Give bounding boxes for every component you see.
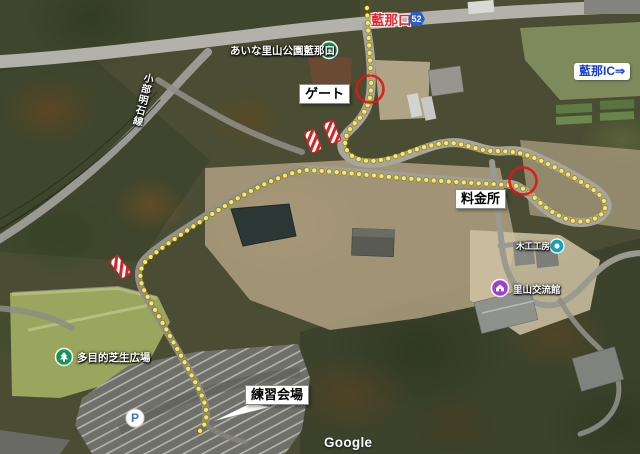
terrain-layer — [0, 0, 640, 454]
road-closed-barrier-icon — [323, 120, 341, 145]
map-graphics-layer: P — [0, 0, 640, 454]
wood-workshop-pin-icon[interactable] — [550, 239, 564, 253]
interchange-label: 藍那IC⇒ — [574, 63, 630, 80]
parking-letter: P — [131, 411, 139, 425]
lawn-plaza-label: 多目的芝生広場 — [77, 350, 151, 365]
lawn-plaza-pin-icon[interactable] — [56, 349, 73, 366]
gate-callout: ゲート — [299, 84, 350, 104]
road-closed-barrier-icon — [304, 129, 322, 154]
satoyama-hall-pin-icon[interactable] — [492, 280, 509, 297]
satoyama-hall-label: 里山交流館 — [513, 282, 561, 296]
google-watermark: Google — [324, 435, 372, 450]
parking-pin-icon[interactable]: P — [126, 409, 144, 427]
toll-booth-callout: 料金所 — [455, 189, 506, 209]
satellite-map-canvas[interactable]: P 藍那口 52 あいな里山公園藍那口 小部明石線 藍那IC⇒ ゲート 料金所 … — [0, 0, 640, 454]
wood-workshop-label: 木工工房 — [516, 240, 550, 252]
exit-name-label: 藍那口 — [371, 9, 412, 29]
practice-venue-callout: 練習会場 — [245, 385, 309, 405]
park-entrance-label: あいな里山公園藍那口 — [230, 43, 335, 58]
